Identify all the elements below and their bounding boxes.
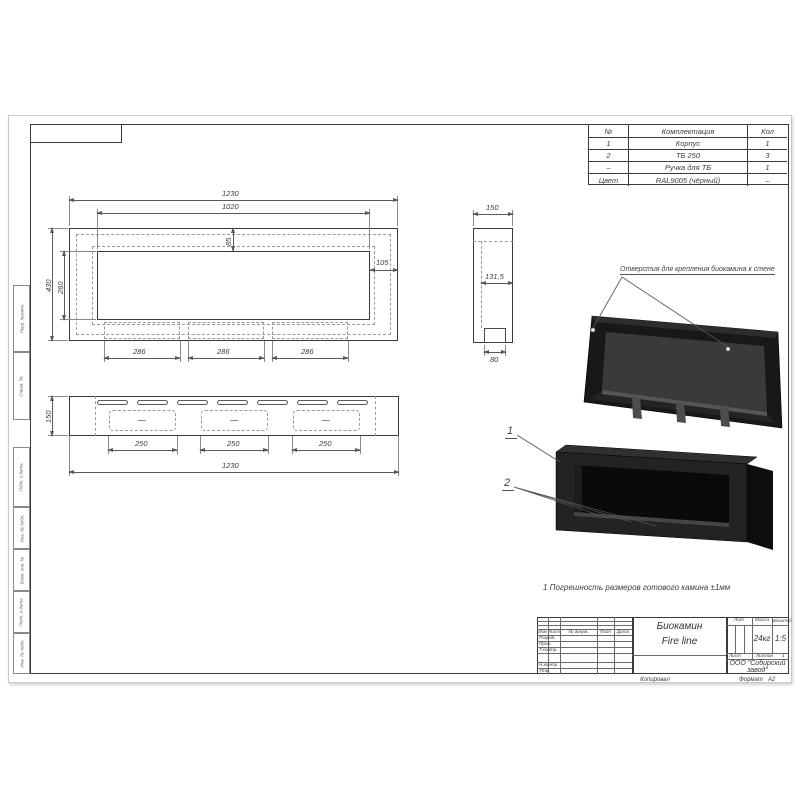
dim-line: [272, 358, 348, 359]
spec-cell: Ручка для ТБ: [629, 162, 748, 174]
margin-stamp-label: Подп. и дата: [19, 463, 24, 491]
spec-cell: Корпус: [629, 138, 748, 150]
spec-cell: 1: [748, 138, 787, 150]
mounting-hole: [726, 347, 730, 351]
vent-slot: [177, 400, 208, 405]
margin-stamp-box: Инв. № подл.: [13, 633, 30, 674]
spec-cell: RAL9005 (чёрный): [629, 174, 748, 186]
vent-slot: [137, 400, 168, 405]
dim-label: 286: [217, 348, 230, 356]
tb-row-nkontr: Н.контр.: [539, 663, 558, 668]
title-block-line: [537, 625, 632, 626]
margin-stamp-box: Подп. и дата: [13, 591, 30, 633]
spec-cell: –: [748, 174, 787, 186]
side-view-hidden-line: [473, 241, 513, 242]
tb-scale-label: Масштаб: [772, 619, 789, 623]
dim-line: [69, 200, 398, 201]
tb-sheets-label: Листов: [756, 654, 773, 659]
dim-label: 250: [227, 440, 240, 448]
margin-stamp-label: Инв. № подл.: [19, 640, 24, 668]
dim-label: 150: [45, 410, 53, 423]
tb-col-izm: Изм: [537, 630, 548, 635]
tolerance-note: 1 Погрешность размеров готового камина ±…: [543, 583, 730, 592]
dim-label: 85: [225, 238, 233, 246]
vent-slot: [257, 400, 288, 405]
vent-slot: [297, 400, 328, 405]
title-block-line: [735, 625, 736, 653]
tb-title-line2: Fire line: [633, 636, 726, 647]
spec-cell: 1: [589, 138, 629, 150]
margin-stamp-box: Инв. № дубл.: [13, 507, 30, 549]
tb-mass-label: Масса: [752, 619, 772, 624]
dim-line: [233, 228, 234, 251]
tb-scale-value: 1:5: [772, 634, 789, 643]
spec-header-num: №: [589, 125, 629, 138]
title-block-line: [726, 625, 789, 626]
dim-line: [108, 450, 177, 451]
dim-label: 250: [135, 440, 148, 448]
margin-stamp-label: Взам. инв. №: [19, 556, 24, 584]
tb-col-list: Лист: [548, 630, 560, 635]
format-label: Формат: [739, 677, 763, 683]
isometric-views: [480, 250, 800, 590]
ext-line: [369, 209, 370, 249]
top-left-stamp-box: [30, 124, 122, 143]
bottom-view-hidden-line: [375, 396, 376, 436]
holes-annotation: Отверстия для крепления биокамина к стен…: [620, 266, 775, 275]
dim-label: 1230: [222, 190, 239, 198]
tb-row-utv: Утв.: [539, 669, 549, 674]
bottom-view-hidden-line: [95, 396, 96, 436]
title-block-line: [632, 655, 726, 656]
margin-stamp-label: Справ. №: [19, 376, 24, 396]
spec-cell: –: [589, 162, 629, 174]
drawing-canvas: Перв. примен. Справ. № Подп. и дата Инв.…: [0, 0, 800, 800]
tb-row-prov: Пров.: [539, 642, 551, 647]
dim-label: 1020: [222, 203, 239, 211]
dim-label: 286: [133, 348, 146, 356]
dim-line: [97, 213, 370, 214]
tb-col-doc: № докум.: [560, 630, 597, 635]
dim-line: [200, 450, 268, 451]
tb-sheets-value: 1: [782, 654, 785, 659]
dim-line: [188, 358, 264, 359]
callout-2: 2: [502, 477, 514, 491]
dim-line: [69, 472, 399, 473]
margin-stamp-box: Подп. и дата: [13, 447, 30, 507]
tb-company-line1: ООО "Сибирский: [727, 660, 788, 667]
dim-label: 1230: [222, 462, 239, 470]
front-view-burner-hidden: [188, 322, 264, 339]
title-block-line: [537, 621, 632, 622]
callout-1: 1: [505, 425, 517, 439]
spec-header-name: Комплектация: [629, 125, 748, 138]
front-view-burner-hidden: [272, 322, 348, 339]
dim-label: 250: [319, 440, 332, 448]
tb-sheet-label: Лист: [729, 654, 741, 659]
title-block-line: [537, 668, 632, 669]
mounting-hole: [591, 328, 595, 332]
title-block-line: [537, 641, 632, 642]
tb-lit-label: Лит.: [727, 619, 752, 624]
tb-row-razrab: Разраб.: [539, 636, 556, 641]
margin-stamp-box: Справ. №: [13, 352, 30, 420]
fireplace-front-side-face: [747, 464, 773, 550]
spec-cell: 1: [748, 162, 787, 174]
dim-line: [473, 214, 513, 215]
margin-stamp-label: Инв. № дубл.: [19, 514, 24, 542]
callout-1-leader: [517, 435, 560, 462]
tb-col-podp: Подп: [597, 630, 614, 635]
dim-line: [370, 270, 398, 271]
dim-label: 150: [486, 204, 499, 212]
margin-stamp-box: Взам. инв. №: [13, 549, 30, 591]
ext-line: [97, 209, 98, 249]
dim-line: [292, 450, 360, 451]
specification-table: № Комплектация Кол 1 Корпус 1 2 ТБ 250 3…: [588, 124, 789, 185]
dim-label: 260: [57, 281, 65, 294]
format-value: А2: [768, 677, 775, 683]
dim-label: 105: [376, 259, 389, 267]
spec-cell: 2: [589, 150, 629, 162]
title-block-line: [537, 653, 632, 654]
center-mark: [230, 420, 238, 421]
spec-cell: Цвет: [589, 174, 629, 186]
margin-stamp-label: Подп. и дата: [19, 598, 24, 626]
center-mark: [138, 420, 146, 421]
tb-col-data: Дата: [614, 630, 632, 635]
vent-slot: [337, 400, 368, 405]
spec-cell: ТБ 250: [629, 150, 748, 162]
dim-label: 430: [45, 279, 53, 292]
margin-stamp-label: Перв. примен.: [19, 304, 24, 334]
margin-stamp-box: Перв. примен.: [13, 285, 30, 352]
tb-title-line1: Биокамин: [633, 621, 726, 632]
front-view-burner-hidden: [104, 322, 180, 339]
dim-line: [104, 358, 180, 359]
center-mark: [322, 420, 330, 421]
tb-mass-value: 24кг: [752, 634, 772, 643]
dim-label: 286: [301, 348, 314, 356]
front-view-opening: [97, 251, 370, 320]
vent-slot: [217, 400, 248, 405]
vent-slot: [97, 400, 128, 405]
spec-cell: 3: [748, 150, 787, 162]
copied-label: Копировал: [630, 677, 680, 683]
spec-header-qty: Кол: [748, 125, 787, 138]
title-block-line: [744, 625, 745, 653]
tb-row-tkontr: Т.контр.: [539, 648, 558, 653]
tb-company-line2: завод": [727, 667, 788, 674]
